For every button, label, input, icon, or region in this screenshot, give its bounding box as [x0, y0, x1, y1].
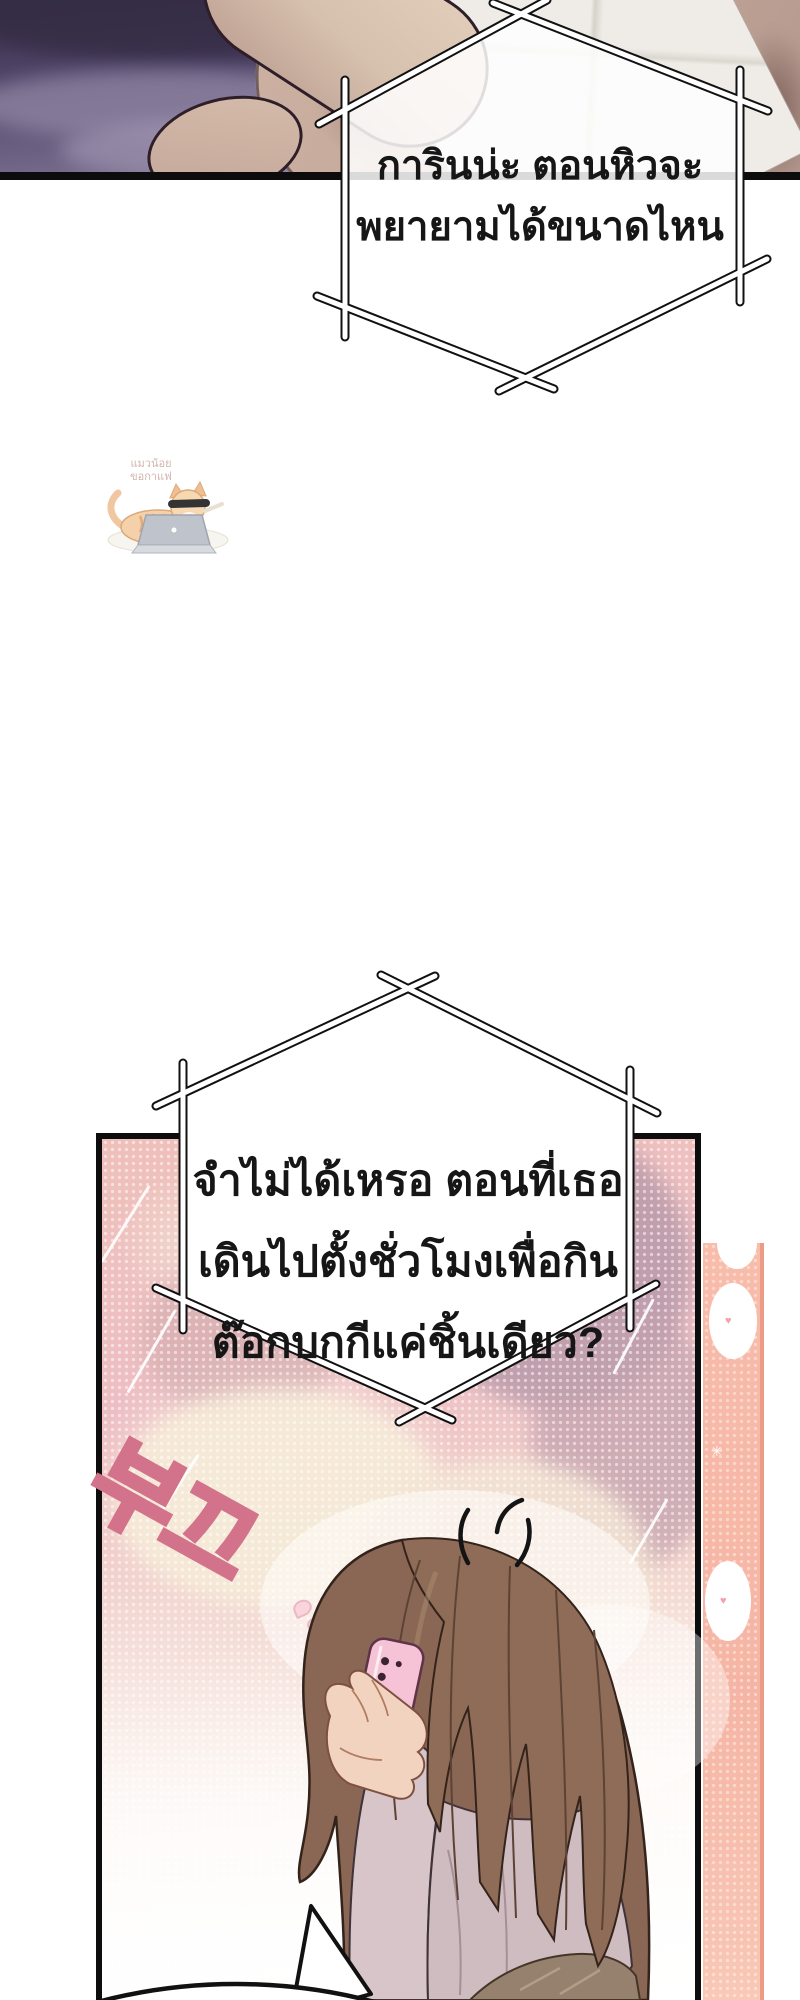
cat-ear: [192, 482, 206, 496]
speech-line: ต๊อกบกกีแค่ชิ้นเดียว?: [168, 1303, 648, 1384]
cat-tail: [111, 493, 132, 530]
speech-line: เดินไปตั้งชั่วโมงเพื่อกิน: [168, 1222, 648, 1303]
laptop-screen: [138, 515, 210, 545]
comic-page: การินน่ะ ตอนหิวจะ พยายามได้ขนาดไหน แมวน้…: [0, 0, 800, 2000]
heart-icon: ♥: [725, 1315, 732, 1327]
heart-icon: ♥: [720, 1595, 727, 1607]
sparkle-icon: ✳: [711, 1443, 723, 1460]
side-strip-panel: ♥ ♥ ✳: [703, 1243, 764, 2000]
laptop-base: [132, 545, 216, 553]
watermark-text: แมวน้อย: [96, 458, 206, 471]
speech-bubble-mid-text: จำไม่ได้เหรอ ตอนที่เธอ เดินไปตั้งชั่วโมง…: [168, 1141, 648, 1384]
chat-bubble-blob: [709, 1283, 757, 1359]
cat-ear: [170, 484, 184, 498]
laptop-logo-dot: [172, 528, 177, 533]
speech-bubble-top-text: การินน่ะ ตอนหิวจะ พยายามได้ขนาดไหน: [330, 136, 750, 258]
watermark-text: ขอกาแฟ: [96, 471, 206, 484]
chat-bubble-blob: [705, 1561, 751, 1641]
cat-muzzle: [181, 512, 197, 522]
cat-body: [121, 510, 195, 544]
speech-line: จำไม่ได้เหรอ ตอนที่เธอ: [168, 1141, 648, 1222]
cat-stripes: [140, 514, 166, 532]
speech-line: พยายามได้ขนาดไหน: [330, 197, 750, 258]
cat-blanket: [108, 527, 228, 553]
cat-whisker-stick: [205, 504, 222, 511]
sunglasses-icon: [172, 503, 206, 504]
speech-line: การินน่ะ ตอนหิวจะ: [330, 136, 750, 197]
cat-head: [171, 490, 205, 524]
